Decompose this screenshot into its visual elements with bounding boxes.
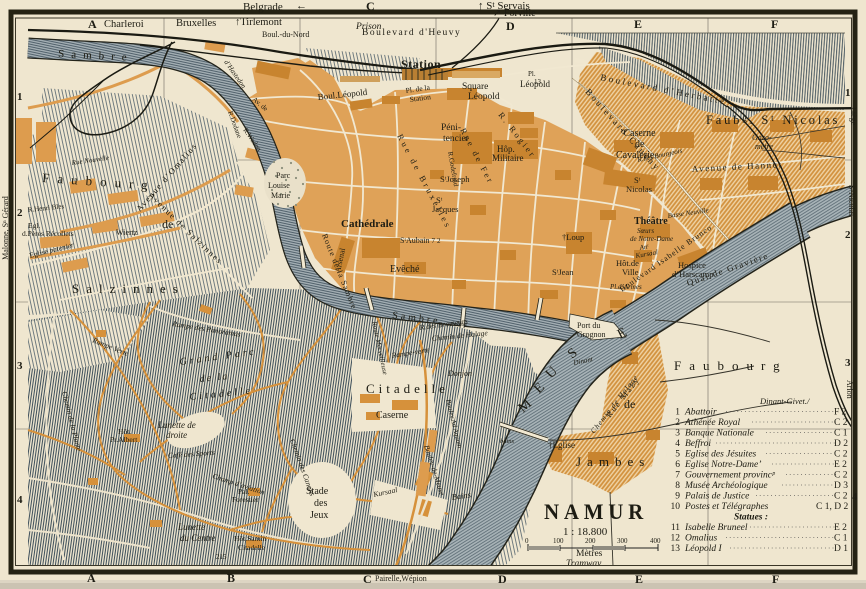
svg-text:Belgrade: Belgrade bbox=[243, 1, 283, 13]
svg-text:8: 8 bbox=[675, 481, 680, 491]
svg-text:1: 1 bbox=[845, 87, 851, 99]
svg-text:Péni-: Péni- bbox=[441, 123, 461, 133]
svg-text:200: 200 bbox=[585, 537, 596, 545]
svg-text:C 2: C 2 bbox=[834, 471, 848, 481]
svg-text:Wiertz: Wiertz bbox=[116, 228, 138, 237]
svg-text:F: F bbox=[771, 17, 778, 31]
svg-text:7: 7 bbox=[675, 471, 680, 481]
svg-text:A: A bbox=[87, 571, 96, 585]
svg-text:Eglise Notre-Dameʼ: Eglise Notre-Dameʼ bbox=[684, 460, 761, 470]
svg-text:Grognon: Grognon bbox=[577, 330, 605, 339]
svg-text:Gouvernement provincᵖ: Gouvernement provincᵖ bbox=[685, 471, 776, 481]
svg-text:11: 11 bbox=[671, 523, 680, 533]
svg-text:Faubourg: Faubourg bbox=[674, 358, 788, 373]
svg-text:1: 1 bbox=[17, 91, 23, 103]
svg-text:D: D bbox=[498, 572, 507, 586]
svg-text:Cathédrale: Cathédrale bbox=[341, 218, 394, 230]
svg-text:4: 4 bbox=[17, 494, 23, 506]
svg-text:0: 0 bbox=[525, 537, 529, 545]
svg-text:Athénée Royal: Athénée Royal bbox=[684, 418, 740, 428]
svg-text:E 2: E 2 bbox=[834, 523, 847, 533]
svg-text:Pl.: Pl. bbox=[528, 70, 536, 78]
svg-text:ʼCaserne: ʼCaserne bbox=[620, 128, 656, 139]
svg-text:1: 1 bbox=[675, 408, 680, 418]
svg-text:Pairelle,Wépion: Pairelle,Wépion bbox=[375, 574, 427, 583]
svg-text:SᵗJean: SᵗJean bbox=[552, 267, 574, 277]
svg-text:↗ Forville: ↗ Forville bbox=[493, 8, 536, 19]
svg-text:215: 215 bbox=[216, 553, 227, 561]
svg-text:Parc: Parc bbox=[276, 171, 291, 180]
svg-text:SᵗAubain 7 2: SᵗAubain 7 2 bbox=[400, 236, 441, 245]
svg-text:Charleroi: Charleroi bbox=[104, 19, 144, 30]
svg-text:d.Pères Récollets: d.Pères Récollets bbox=[22, 229, 74, 238]
svg-text:Léopold: Léopold bbox=[468, 92, 500, 102]
svg-text:4: 4 bbox=[675, 439, 680, 449]
svg-text:100: 100 bbox=[553, 537, 564, 545]
svg-text:Port du: Port du bbox=[577, 321, 600, 330]
svg-text:Statues :: Statues : bbox=[734, 513, 768, 523]
svg-text:Dinant-Givet./: Dinant-Givet./ bbox=[759, 396, 811, 406]
svg-text:E: E bbox=[635, 572, 643, 586]
svg-text:Abattoir: Abattoir bbox=[684, 408, 717, 418]
svg-text:NAMUR: NAMUR bbox=[544, 499, 648, 524]
svg-text:C: C bbox=[363, 572, 372, 586]
svg-text:Isabelle Bruneel: Isabelle Bruneel bbox=[684, 523, 748, 533]
svg-text:C 2: C 2 bbox=[834, 450, 848, 460]
svg-text:6: 6 bbox=[675, 460, 680, 470]
svg-text:400: 400 bbox=[650, 537, 661, 545]
svg-text:Citadelle: Citadelle bbox=[238, 543, 266, 552]
svg-text:5: 5 bbox=[675, 450, 680, 460]
svg-text:2: 2 bbox=[17, 207, 23, 219]
svg-text:Sœurs: Sœurs bbox=[637, 227, 654, 235]
svg-text:C 2: C 2 bbox=[834, 492, 848, 502]
svg-text:2: 2 bbox=[845, 229, 851, 241]
svg-text:de Notre-Dame: de Notre-Dame bbox=[630, 235, 673, 243]
svg-text:Lunette de: Lunette de bbox=[157, 420, 196, 430]
svg-text:Arlon: Arlon bbox=[845, 380, 854, 399]
svg-text:E 2: E 2 bbox=[834, 460, 847, 470]
svg-text:Lunette: Lunette bbox=[177, 522, 205, 532]
svg-text:Hôt.Samin: Hôt.Samin bbox=[234, 534, 267, 543]
svg-text:2: 2 bbox=[675, 418, 680, 428]
svg-text:droite: droite bbox=[166, 430, 187, 440]
svg-text:Boul.-du-Nord: Boul.-du-Nord bbox=[262, 30, 309, 39]
svg-text:Omalius: Omalius bbox=[685, 534, 718, 544]
svg-text:Station: Station bbox=[401, 57, 441, 71]
svg-text:de: de bbox=[635, 139, 645, 150]
svg-text:Nicolas: Nicolas bbox=[626, 184, 652, 194]
svg-text:10: 10 bbox=[671, 502, 681, 512]
svg-text:des: des bbox=[314, 498, 327, 509]
svg-text:C 1, D 2: C 1, D 2 bbox=[816, 502, 848, 512]
svg-text:Militaire: Militaire bbox=[492, 153, 524, 163]
svg-text:Eglise des Jésuites: Eglise des Jésuites bbox=[684, 450, 757, 460]
svg-text:D: D bbox=[506, 19, 515, 33]
svg-text:D 2: D 2 bbox=[834, 439, 848, 449]
svg-text:Caserne: Caserne bbox=[376, 410, 409, 421]
svg-text:13: 13 bbox=[534, 78, 542, 86]
svg-text:3: 3 bbox=[17, 360, 23, 372]
svg-text:Pr.Albert: Pr.Albert bbox=[110, 435, 138, 444]
svg-text:9: 9 bbox=[675, 492, 680, 502]
svg-text:Evêché: Evêché bbox=[390, 264, 420, 275]
svg-text:SⁿNicolas: SⁿNicolas bbox=[847, 185, 856, 216]
svg-text:Banque Nationale: Banque Nationale bbox=[685, 429, 754, 439]
svg-text:Bruxelles: Bruxelles bbox=[176, 18, 216, 29]
svg-text:Citadelle: Citadelle bbox=[366, 381, 449, 396]
svg-text:Jambes: Jambes bbox=[576, 454, 650, 469]
svg-text:C 1: C 1 bbox=[834, 429, 848, 439]
svg-text:Marie: Marie bbox=[271, 191, 291, 200]
svg-text:←: ← bbox=[296, 0, 307, 12]
svg-text:Donjon: Donjon bbox=[447, 369, 472, 378]
svg-text:13: 13 bbox=[671, 544, 681, 554]
svg-text:Palais de Justice: Palais de Justice bbox=[684, 492, 749, 502]
svg-text:†Loup: †Loup bbox=[562, 232, 584, 242]
svg-text:C: C bbox=[366, 0, 375, 13]
svg-text:Mètres: Mètres bbox=[576, 549, 603, 559]
svg-text:300: 300 bbox=[617, 537, 628, 545]
svg-text:Malonne, Sⁿ Gérard: Malonne, Sⁿ Gérard bbox=[1, 196, 10, 260]
svg-text:3: 3 bbox=[845, 357, 851, 369]
svg-text:Square: Square bbox=[462, 82, 488, 92]
svg-text:Beffroi: Beffroi bbox=[685, 438, 711, 449]
svg-text:E: E bbox=[634, 17, 642, 31]
svg-text:F: F bbox=[772, 572, 779, 586]
svg-text:Gazo-: Gazo- bbox=[752, 133, 772, 142]
svg-text:Forestier: Forestier bbox=[232, 495, 259, 504]
svg-text:B: B bbox=[227, 571, 235, 585]
svg-text:F 2: F 2 bbox=[834, 408, 847, 418]
svg-text:4: 4 bbox=[852, 491, 858, 503]
svg-text:12: 12 bbox=[671, 534, 681, 544]
svg-text:Léopold I: Léopold I bbox=[684, 544, 723, 554]
svg-text:3: 3 bbox=[675, 429, 680, 439]
svg-text:Postes et Télégraphes: Postes et Télégraphes bbox=[684, 502, 769, 512]
svg-text:mètre: mètre bbox=[755, 142, 773, 151]
svg-text:Ecluse: Ecluse bbox=[449, 321, 467, 328]
svg-text:bains: bains bbox=[500, 438, 515, 445]
svg-text:Musée Archéologique: Musée Archéologique bbox=[684, 481, 768, 491]
svg-text:Prison: Prison bbox=[355, 22, 382, 32]
svg-text:D 1: D 1 bbox=[834, 544, 848, 554]
svg-text:C 1: C 1 bbox=[834, 534, 848, 544]
svg-text:D 3: D 3 bbox=[834, 481, 848, 491]
svg-text:du Centre: du Centre bbox=[180, 533, 215, 543]
svg-text:C 2: C 2 bbox=[834, 418, 848, 428]
svg-text:†Eglise: †Eglise bbox=[548, 440, 575, 450]
svg-text:Liège: Liège bbox=[849, 107, 858, 126]
svg-text:↑Tirlemont: ↑Tirlemont bbox=[235, 17, 282, 28]
svg-text:Théâtre: Théâtre bbox=[634, 216, 668, 227]
svg-text:Salzinnes: Salzinnes bbox=[72, 281, 185, 296]
svg-text:Louise: Louise bbox=[268, 181, 290, 190]
svg-text:A: A bbox=[88, 17, 97, 31]
svg-text:Jeux: Jeux bbox=[310, 510, 328, 521]
